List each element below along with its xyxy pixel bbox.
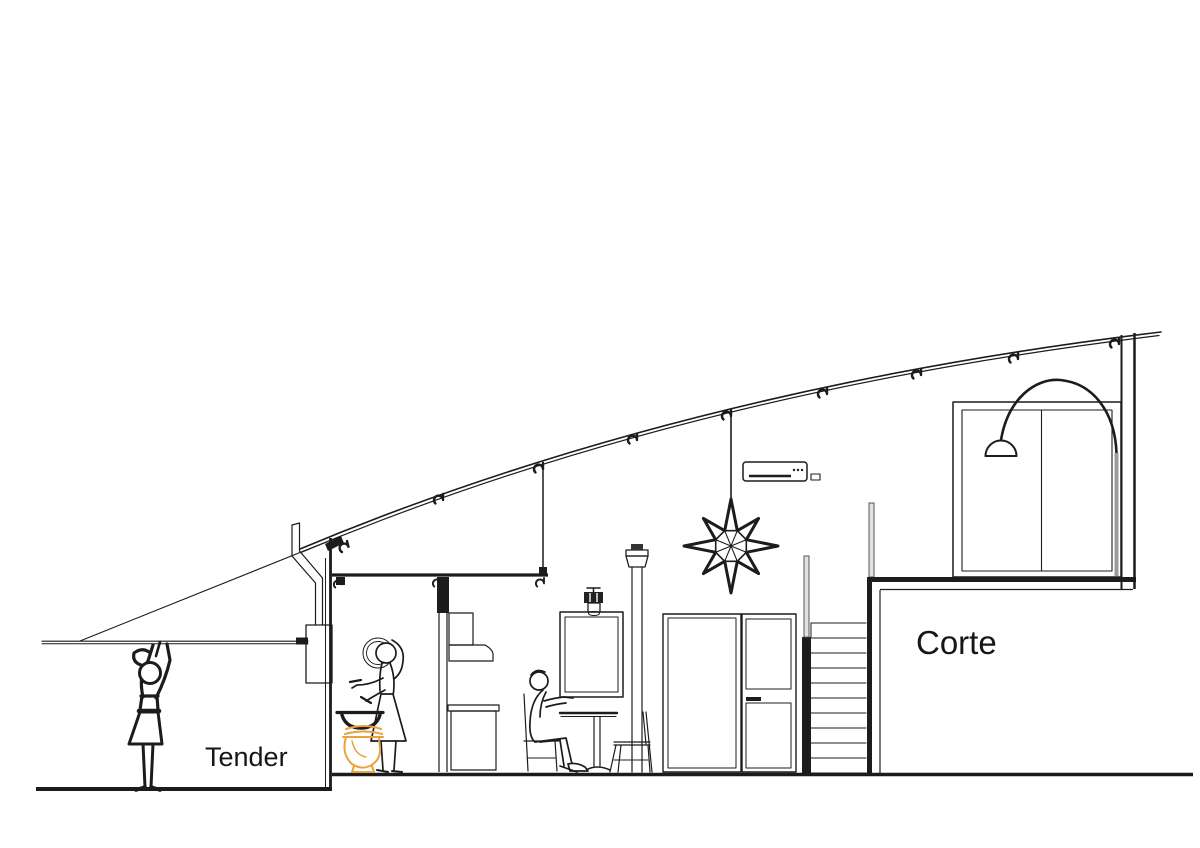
chair-right xyxy=(610,712,652,772)
section-drawing-svg: Tender Corte xyxy=(0,0,1200,848)
stair-rail-post xyxy=(804,556,809,637)
upper-window xyxy=(953,402,1121,577)
seated-man xyxy=(530,671,588,772)
laundry-woman xyxy=(129,642,170,790)
kitchen-counter xyxy=(448,705,499,770)
balcony-rail-post xyxy=(869,503,874,577)
picture-frame xyxy=(560,612,623,697)
stove-box xyxy=(306,625,332,683)
door-handle xyxy=(746,697,761,701)
bathroom xyxy=(337,638,406,772)
corte-room xyxy=(867,503,1136,774)
glass-doors xyxy=(663,614,796,772)
architectural-section-drawing: Tender Corte xyxy=(0,0,1200,848)
partition-wall xyxy=(437,577,449,772)
roof-guy-wire xyxy=(80,536,341,641)
woman-at-basin xyxy=(350,640,406,772)
clothesline xyxy=(42,638,308,645)
staircase xyxy=(802,556,866,775)
ceiling-beam xyxy=(332,468,548,588)
roof-hooks xyxy=(434,338,1119,504)
toilet xyxy=(343,726,383,772)
star-pendant-lamp xyxy=(684,412,778,593)
dining-table xyxy=(560,713,617,770)
air-conditioner xyxy=(743,462,820,481)
range-hood xyxy=(449,645,493,661)
flue-cabinet xyxy=(449,613,473,645)
label-corte: Corte xyxy=(916,624,997,661)
label-tender: Tender xyxy=(205,742,288,772)
kitchen xyxy=(437,577,499,772)
stove-pipe xyxy=(626,544,648,772)
ac-remote xyxy=(811,474,820,480)
arc-floor-lamp xyxy=(986,380,1117,576)
right-wall xyxy=(1122,333,1135,589)
ground-lines xyxy=(36,775,1193,790)
